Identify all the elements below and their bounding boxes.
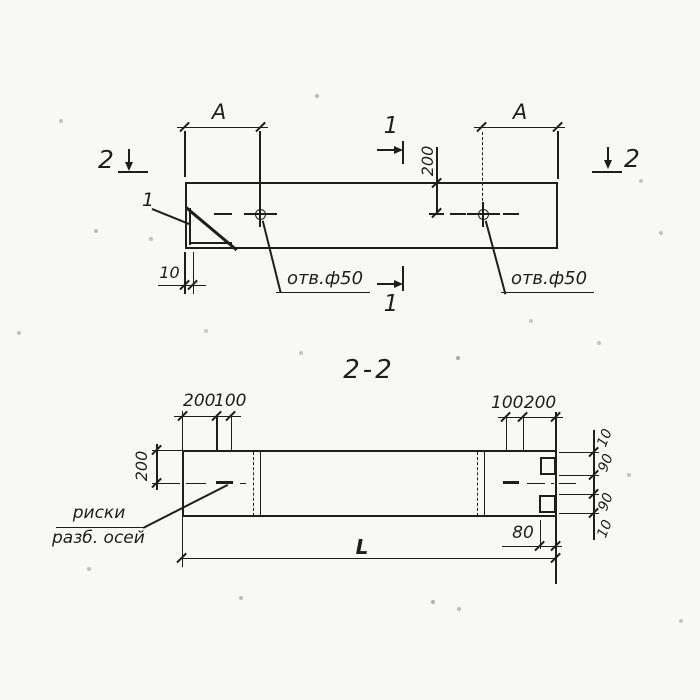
section-outline: [182, 450, 557, 517]
callout-underline: [276, 292, 370, 293]
hole-callout-left: отв.ф50: [280, 270, 370, 288]
extension-line: [555, 517, 556, 584]
section-marker-2-left-label: 2: [94, 147, 118, 172]
extension-line: [231, 417, 232, 450]
section-marker-2-right-label: 2: [620, 146, 644, 171]
chain-dim-90-lower: 90: [595, 488, 617, 515]
section-marker-2-right-line: [607, 147, 608, 161]
dim-label-height-200: 200: [134, 449, 150, 483]
chain-dim-10-bottom: 10: [594, 515, 616, 542]
beam-outline: [185, 182, 558, 249]
extension-line-dashed: [482, 132, 483, 206]
notch-top: [540, 457, 556, 475]
section-plane-bar: [118, 171, 148, 173]
joint-line-right: [484, 452, 486, 516]
dimension-line-a-left: [177, 127, 268, 128]
dim-label-200-right: 200: [522, 395, 558, 412]
center-line-dot: [551, 483, 554, 484]
detail-label-1: 1: [140, 191, 156, 210]
axis-mark-dash: [450, 213, 466, 215]
axis-riska-mark-right: [503, 481, 519, 484]
section-marker-1-bottom-line: [377, 283, 395, 284]
section-plane-bar: [402, 141, 404, 164]
section-marker-1-top-label: 1: [382, 115, 400, 138]
dim-label-100-right: 100: [491, 395, 519, 412]
axis-mark-dash: [429, 213, 444, 215]
hidden-line-right: [477, 452, 478, 516]
section-marker-1-bottom-label: 1: [382, 293, 400, 316]
dimension-line-length: [182, 558, 556, 559]
hidden-line-left: [253, 452, 254, 516]
dim-label-length: L: [351, 537, 373, 557]
axis-mark-dash: [214, 213, 232, 215]
drawing-sheet: 1 A A 200: [0, 0, 700, 700]
extension-line: [523, 418, 524, 451]
extension-line: [259, 131, 260, 207]
extension-line: [184, 252, 185, 294]
center-line-dash: [240, 483, 246, 484]
callout-underline: [501, 292, 594, 293]
section-arrow-right-icon: [394, 280, 403, 288]
extension-line: [193, 252, 194, 294]
center-line-dash: [559, 483, 576, 484]
chain-dim-90-upper: 90: [595, 449, 617, 476]
hole-callout-right: отв.ф50: [504, 270, 594, 288]
joint-line-left: [260, 452, 262, 516]
dim-label-80: 80: [509, 525, 537, 542]
scan-noise: [0, 0, 2, 2]
axis-riska-mark-left: [216, 481, 233, 484]
dim-label-a-left: A: [205, 102, 233, 123]
section-arrow-down-icon: [604, 160, 612, 169]
axis-mark-dash: [503, 213, 519, 215]
extension-line: [557, 131, 558, 179]
section-title: 2-2: [340, 357, 398, 383]
center-line-dash: [186, 483, 206, 484]
extension-line: [216, 417, 217, 450]
center-line-dash: [527, 483, 545, 484]
dim-label-a-right: A: [506, 102, 534, 123]
section-plane-bar: [592, 171, 622, 173]
extension-line: [506, 418, 507, 451]
dim-label-100-left: 100: [214, 393, 242, 410]
dim-label-200: 200: [420, 144, 436, 178]
dim-label-200-left: 200: [183, 393, 215, 410]
axis-marks-label-line1: риски: [68, 505, 130, 522]
section-marker-2-left-line: [128, 149, 129, 163]
chain-dim-10-top: 10: [594, 424, 616, 451]
axis-marks-label-line2: разб. осей: [52, 530, 144, 547]
extension-line: [184, 131, 185, 177]
extension-line: [182, 517, 183, 567]
dim-label-10: 10: [156, 265, 183, 281]
section-marker-1-top-line: [377, 149, 395, 150]
dimension-line-a-right: [474, 127, 565, 128]
notch-bottom: [539, 495, 556, 513]
